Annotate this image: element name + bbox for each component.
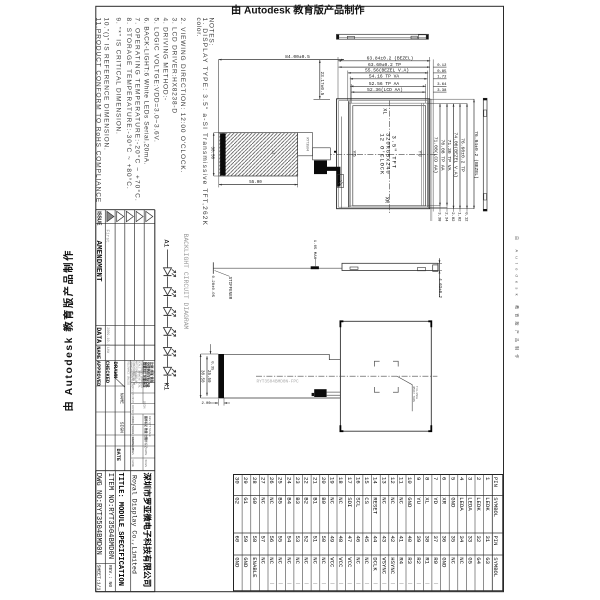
svg-text:5. LOGIC VOLTGE:VDD=3.0~3.6V.: 5. LOGIC VOLTGE:VDD=3.0~3.6V.: [153, 18, 160, 143]
svg-text:SIGN: SIGN: [131, 449, 135, 455]
svg-text:NC: NC: [389, 497, 396, 504]
svg-text:A1: A1: [162, 240, 169, 248]
svg-text:3.38: 3.38: [436, 212, 440, 222]
svg-text:55: 55: [277, 536, 284, 543]
svg-text:34: 34: [458, 536, 465, 543]
svg-text:9: 9: [415, 477, 422, 480]
svg-text:40: 40: [406, 536, 413, 543]
svg-text:30: 30: [234, 477, 241, 484]
svg-text:37: 37: [432, 536, 439, 543]
svg-text:AREA F: AREA F: [134, 373, 137, 382]
svg-text:SCGN: SCGN: [144, 460, 148, 468]
svg-text:18: 18: [337, 477, 344, 484]
svg-text:K1: K1: [162, 383, 169, 391]
svg-text:0.12: 0.12: [463, 212, 467, 222]
svg-text:Royal Display Co.,Limited: Royal Display Co.,Limited: [131, 475, 138, 574]
svg-text:3: 3: [467, 477, 474, 480]
svg-text:4. DRIVING METHOD:-: 4. DRIVING METHOD:-: [162, 18, 169, 101]
svg-text:63.60±0.2 TP: 63.60±0.2 TP: [368, 62, 401, 68]
svg-text:1. DISPLAY TYPE: 3.5" a-SI Tr: 1. DISPLAY TYPE: 3.5" a-SI Transmissive …: [201, 18, 208, 227]
svg-text:YU: YU: [415, 497, 422, 504]
svg-text:#3: #3: [271, 151, 275, 155]
svg-text:NC: NC: [398, 497, 405, 504]
svg-text:由 Autodesk 教育版产品制作: 由 Autodesk 教育版产品制作: [231, 4, 365, 17]
svg-text:NC: NC: [260, 497, 267, 504]
svg-text:B2: B2: [303, 497, 310, 504]
svg-text:RESET: RESET: [372, 497, 379, 514]
svg-text:FINISH: FINISH: [131, 395, 134, 403]
svg-text:DRAWN: DRAWN: [112, 362, 119, 379]
svg-text:1.82: 1.82: [456, 212, 460, 222]
svg-text:NC: NC: [320, 557, 327, 564]
svg-text:39: 39: [415, 536, 422, 543]
svg-text:XL: XL: [382, 108, 388, 114]
svg-text:51: 51: [311, 536, 318, 543]
svg-text:2. VIEWING DIRECTION: 12:00 O': 2. VIEWING DIRECTION: 12:00 O'CLOCK.: [179, 18, 186, 174]
svg-text:SYMBOL: SYMBOL: [492, 497, 499, 517]
svg-text:29: 29: [242, 477, 249, 484]
svg-text:28: 28: [251, 477, 258, 484]
svg-text:NC: NC: [260, 557, 267, 564]
svg-text:LHW: LHW: [105, 347, 109, 354]
svg-text:ENABLE: ENABLE: [251, 557, 258, 578]
svg-text:SYMBOL: SYMBOL: [492, 557, 499, 577]
svg-text:B0: B0: [320, 497, 327, 504]
svg-text:58: 58: [251, 536, 258, 543]
svg-text:First: First: [104, 230, 109, 244]
svg-text:图样标记: 图样标记: [144, 437, 148, 448]
svg-text:YD: YD: [432, 497, 439, 504]
svg-text:59: 59: [242, 536, 249, 543]
svg-text:56: 56: [268, 536, 275, 543]
svg-text:BACKLIGHT CIRCUIT DIAGRAM: BACKLIGHT CIRCUIT DIAGRAM: [182, 234, 189, 330]
svg-text:NC: NC: [449, 557, 456, 564]
svg-text:30.50: 30.50: [200, 370, 204, 383]
svg-text:G0: G0: [251, 497, 258, 504]
svg-text:由 Autodesk 教育版产品制作: 由 Autodesk 教育版产品制作: [62, 249, 75, 411]
svg-text:19: 19: [329, 477, 336, 484]
svg-text:49: 49: [329, 536, 336, 543]
svg-text:SDI: SDI: [346, 497, 353, 507]
svg-text:GND: GND: [449, 497, 456, 508]
svg-text:STIFFENER: STIFFENER: [227, 277, 231, 300]
svg-text:63.84±0.2 (BEZEL): 63.84±0.2 (BEZEL): [367, 56, 414, 62]
svg-text:NC: NC: [311, 557, 318, 564]
svg-text:TOLERANCE UNLESS: TOLERANCE UNLESS: [127, 361, 130, 386]
svg-text:54.16 TP VA: 54.16 TP VA: [369, 74, 400, 80]
svg-text:50: 50: [320, 536, 327, 543]
svg-text:YU: YU: [417, 150, 423, 156]
svg-text:NC: NC: [458, 557, 465, 564]
svg-text:70.08 TP AA: 70.08 TP AA: [439, 140, 445, 171]
svg-text:71.08(LCD AA): 71.08(LCD AA): [432, 137, 438, 174]
svg-text:53: 53: [294, 536, 301, 543]
svg-text:11: 11: [398, 477, 405, 484]
svg-text:12 O'CLOCK: 12 O'CLOCK: [378, 134, 385, 176]
svg-text:45: 45: [363, 536, 370, 543]
svg-text:R4: R4: [398, 557, 405, 564]
svg-text:PIN: PIN: [492, 477, 499, 487]
svg-text:3.38: 3.38: [437, 89, 447, 93]
svg-text:REV QTY SCALE: REV QTY SCALE: [148, 416, 152, 437]
svg-text:NC: NC: [268, 497, 275, 504]
svg-text:11.PRODUCT CONFORM TO RoHS COM: 11.PRODUCT CONFORM TO RoHS COMPLIANCE: [95, 18, 102, 204]
svg-text:24: 24: [285, 477, 292, 484]
svg-text:25.50: 25.50: [206, 370, 210, 383]
svg-text:LEDA: LEDA: [467, 497, 474, 511]
svg-text:G5: G5: [467, 557, 474, 564]
svg-text:B3: B3: [294, 497, 301, 504]
svg-text:12: 12: [389, 477, 396, 484]
svg-text:NC: NC: [285, 557, 292, 564]
svg-text:YD: YD: [351, 150, 357, 156]
svg-text:6. BACK-LIGHT:6 White LEDs Ser: 6. BACK-LIGHT:6 White LEDs Serial,20mA.: [143, 18, 150, 166]
svg-text:38: 38: [423, 536, 430, 543]
svg-text:B4: B4: [285, 497, 292, 504]
svg-text:2009.10.1: 2009.10.1: [105, 327, 109, 345]
svg-text:42: 42: [389, 536, 396, 543]
svg-text:NC: NC: [354, 557, 361, 564]
svg-text:35: 35: [449, 536, 456, 543]
svg-text:60: 60: [234, 536, 241, 543]
svg-text:SCALE DRAWING SCAL: SCALE DRAWING SCAL: [137, 361, 140, 389]
svg-text:54: 54: [285, 536, 292, 543]
svg-text:27: 27: [260, 477, 267, 484]
svg-text:ITEM NO:RYT3504BMD0N: ITEM NO:RYT3504BMD0N: [106, 473, 114, 559]
svg-text:REV.: N0: REV.: N0: [107, 565, 113, 587]
svg-text:0.85: 0.85: [437, 70, 447, 74]
svg-text:VCC: VCC: [329, 557, 336, 568]
svg-text:比例 共张 第张: 比例 共张 第张: [150, 362, 155, 384]
svg-text:由 Autodesk 教育版产品制作: 由 Autodesk 教育版产品制作: [515, 236, 521, 363]
svg-text:TITLE: MODULE_SPECIFICATION: TITLE: MODULE_SPECIFICATION: [116, 473, 124, 586]
svg-text:55.56(BEZEL V.A): 55.56(BEZEL V.A): [365, 68, 409, 74]
svg-text:31: 31: [484, 536, 491, 543]
svg-text:GND: GND: [406, 497, 413, 508]
svg-text:44: 44: [372, 536, 379, 543]
svg-text:74.00(BEZEL V.A): 74.00(BEZEL V.A): [452, 132, 458, 177]
svg-text:5: 5: [449, 477, 456, 480]
svg-text:52: 52: [303, 536, 310, 543]
svg-text:FINISH: FINISH: [131, 373, 134, 381]
svg-text:84.00±0.5: 84.00±0.5: [285, 54, 310, 60]
svg-text:GND: GND: [234, 557, 241, 568]
svg-text:PIN: PIN: [492, 536, 499, 546]
svg-text:0.28±0.05: 0.28±0.05: [210, 276, 214, 298]
svg-text:21: 21: [311, 477, 318, 484]
svg-text:LEDA: LEDA: [458, 497, 465, 511]
svg-text:NC: NC: [337, 497, 344, 504]
svg-text:XL: XL: [423, 497, 430, 504]
svg-text:30.50: 30.50: [210, 147, 214, 160]
svg-text:NC: NC: [363, 557, 370, 564]
svg-text:3M467 TAPE: 3M467 TAPE: [412, 386, 415, 403]
svg-text:NAME: NAME: [95, 346, 101, 359]
svg-text:17: 17: [346, 477, 353, 484]
svg-text:NAME: NAME: [119, 393, 125, 404]
svg-text:22: 22: [303, 477, 310, 484]
svg-text:36: 36: [441, 536, 448, 543]
svg-text:2: 2: [475, 477, 482, 480]
svg-text:G4: G4: [475, 557, 482, 564]
svg-text:G3: G3: [484, 557, 491, 564]
svg-text:DWG NO:RYT3504BMD0N: DWG NO:RYT3504BMD0N: [94, 473, 102, 555]
svg-text:32: 32: [475, 536, 482, 543]
svg-text:UNIT mm: UNIT mm: [131, 384, 134, 395]
svg-text:52.56 TP AA: 52.56 TP AA: [369, 81, 400, 87]
svg-text:76.60±0.2 TP: 76.60±0.2 TP: [459, 138, 465, 172]
svg-text:8. STORAGE TEMPERATURE:-30°C ~: 8. STORAGE TEMPERATURE:-30°C ~ +80°C.: [125, 18, 133, 190]
svg-text:深圳市罗亚微电子科技有限公司: 深圳市罗亚微电子科技有限公司: [143, 473, 153, 588]
svg-text:46: 46: [354, 536, 361, 543]
svg-text:8: 8: [423, 477, 430, 480]
svg-text:25: 25: [277, 477, 284, 484]
svg-text:26: 26: [268, 477, 275, 484]
svg-text:20: 20: [320, 477, 327, 484]
svg-text:71.30 TP VA: 71.30 TP VA: [446, 140, 452, 171]
svg-text:HSYNC: HSYNC: [389, 557, 396, 574]
svg-text:CHECKED: CHECKED: [104, 361, 110, 383]
svg-text:R0: R0: [432, 557, 439, 564]
svg-text:SHEET:1/1: SHEET:1/1: [96, 565, 102, 591]
svg-text:3.64: 3.64: [437, 83, 447, 87]
svg-text:1.05 MAX: 1.05 MAX: [312, 240, 316, 260]
svg-text:16: 16: [354, 477, 361, 484]
svg-text:3. LCD DRIVER:HX8238-D: 3. LCD DRIVER:HX8238-D: [171, 18, 178, 114]
svg-text:55.00: 55.00: [249, 181, 262, 185]
svg-text:48: 48: [337, 536, 344, 543]
svg-text:G1: G1: [242, 497, 249, 504]
svg-text:2.82: 2.82: [450, 212, 454, 222]
svg-text:13: 13: [380, 477, 387, 484]
svg-text:DATE: DATE: [144, 449, 148, 456]
svg-text:14: 14: [372, 477, 379, 484]
svg-text:B5: B5: [277, 497, 284, 504]
svg-text:R1: R1: [423, 557, 430, 564]
svg-text:DCLK: DCLK: [372, 557, 379, 571]
svg-text:APPROVED: APPROVED: [95, 361, 101, 386]
svg-text:DATE: DATE: [115, 449, 121, 461]
svg-text:VCC: VCC: [337, 557, 344, 568]
svg-text:2.34: 2.34: [443, 212, 447, 222]
svg-text:R3: R3: [406, 557, 413, 564]
svg-text:SCL: SCL: [354, 497, 361, 507]
svg-text:R2: R2: [415, 557, 422, 564]
svg-text:VCC: VCC: [346, 557, 353, 568]
svg-text:NC: NC: [303, 557, 310, 564]
svg-text:52.36(LCD AA): 52.36(LCD AA): [367, 87, 403, 93]
svg-text:6: 6: [441, 477, 448, 480]
svg-text:XR: XR: [384, 197, 390, 203]
svg-text:23: 23: [294, 477, 301, 484]
svg-text:NC: NC: [380, 497, 387, 504]
svg-text:10: 10: [406, 477, 413, 484]
svg-text:43: 43: [380, 536, 387, 543]
svg-text:DATA: DATA: [95, 327, 102, 343]
svg-text:15: 15: [363, 477, 370, 484]
svg-text:AMENDMENT: AMENDMENT: [94, 241, 102, 282]
svg-text:GND: GND: [242, 557, 249, 568]
svg-text:57: 57: [260, 536, 267, 543]
svg-text:41: 41: [398, 536, 405, 543]
svg-text:color.: color.: [195, 18, 202, 38]
svg-text:NAME: NAME: [131, 460, 135, 468]
svg-text:7. OPERATING TEMPERATURE:-20°C: 7. OPERATING TEMPERATURE:-20°C ~ +70°C.: [134, 18, 142, 202]
svg-text:RYT3504BMD0N-FPC: RYT3504BMD0N-FPC: [257, 380, 300, 385]
svg-text:0.12: 0.12: [437, 64, 447, 68]
svg-text:GND: GND: [441, 557, 448, 568]
svg-text:CS: CS: [363, 497, 370, 504]
svg-text:ISSUE: ISSUE: [95, 211, 101, 226]
svg-text:RYT3504: RYT3504: [306, 138, 310, 151]
svg-text:NC: NC: [329, 497, 336, 504]
svg-text:NC: NC: [268, 557, 275, 564]
svg-text:SCGN: SCGN: [143, 401, 147, 409]
svg-text:1.72: 1.72: [437, 76, 447, 80]
svg-text:LEDK: LEDK: [475, 497, 482, 511]
svg-text:47: 47: [346, 536, 353, 543]
svg-text:0.35: 0.35: [210, 361, 214, 371]
svg-text:7: 7: [432, 477, 439, 480]
svg-text:SIGN: SIGN: [119, 422, 125, 433]
svg-text:33: 33: [467, 536, 474, 543]
svg-text:9. "*" IS CRITICAL DIMENSION.: 9. "*" IS CRITICAL DIMENSION.: [115, 18, 122, 135]
svg-text:B1: B1: [311, 497, 318, 504]
svg-text:2.00: 2.00: [201, 402, 211, 406]
svg-text:T=0.05mm: T=0.05mm: [415, 386, 418, 399]
svg-text:VSYNC: VSYNC: [380, 557, 387, 574]
svg-text:NC: NC: [294, 557, 301, 564]
svg-text:NC: NC: [277, 557, 284, 564]
svg-text:G2: G2: [234, 497, 241, 504]
svg-text:XR: XR: [441, 497, 448, 504]
svg-text:10."()" IS REFERENCE DIMENSION: 10."()" IS REFERENCE DIMENSION.: [103, 18, 110, 151]
svg-text:76.84±0.2 (BEZEL): 76.84±0.2 (BEZEL): [473, 131, 479, 179]
svg-text:4.63±0.2: 4.63±0.2: [437, 278, 441, 298]
svg-text:LEDK: LEDK: [484, 497, 491, 511]
